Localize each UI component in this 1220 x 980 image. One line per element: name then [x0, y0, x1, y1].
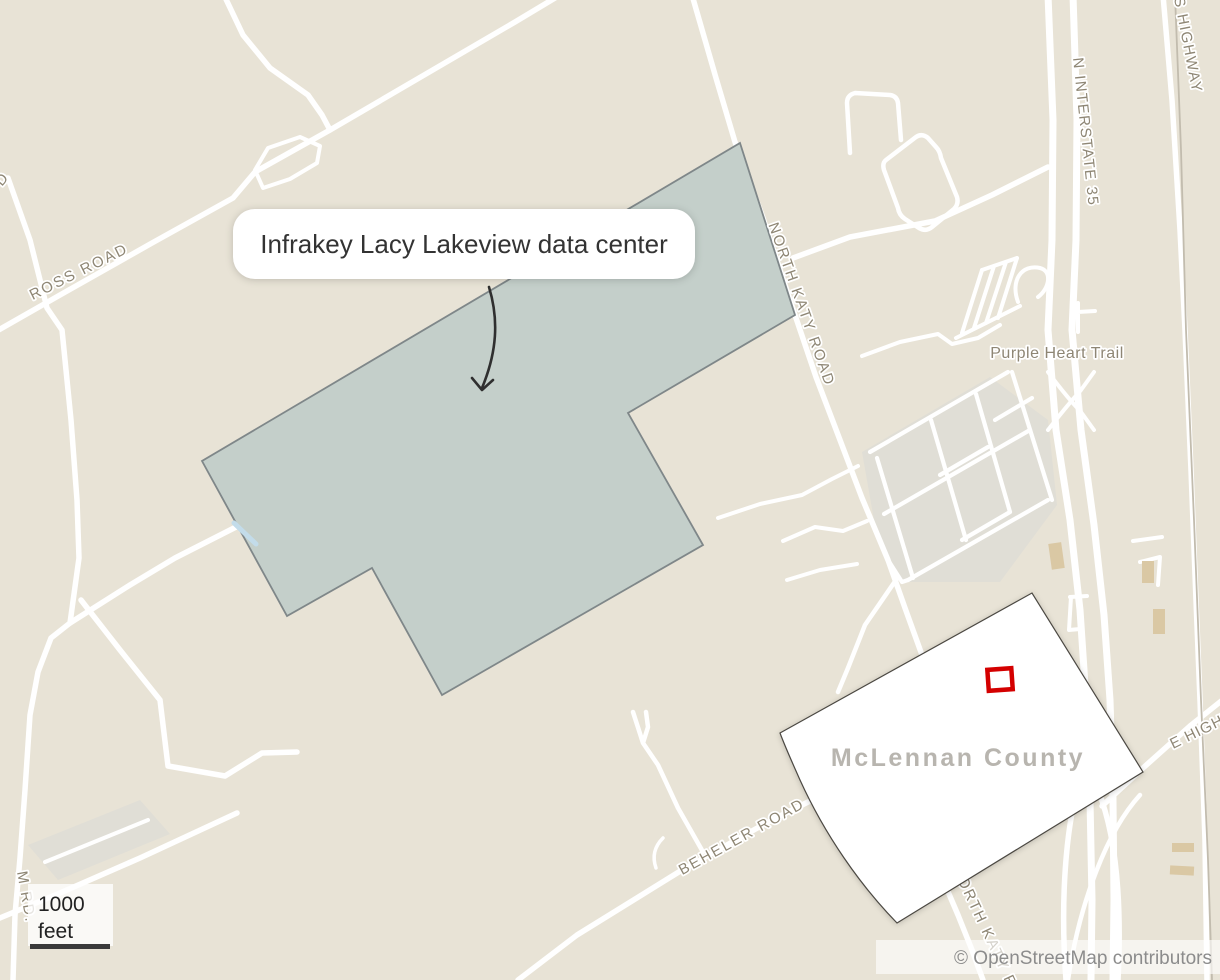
- attribution-bar: © OpenStreetMap contributors: [876, 940, 1220, 974]
- map-frame: ROSS ROAD NORTH KATY ROAD N INTERSTATE 3…: [0, 0, 1220, 980]
- county-name-label: McLennan County: [831, 744, 1085, 772]
- attribution-link[interactable]: © OpenStreetMap contributors: [954, 948, 1212, 969]
- scale-unit: feet: [38, 920, 73, 943]
- road-label-purple-heart-trail: Purple Heart Trail: [990, 345, 1124, 362]
- building: [1153, 609, 1165, 634]
- site-callout: Infrakey Lacy Lakeview data center: [233, 209, 695, 279]
- map-canvas[interactable]: ROSS ROAD NORTH KATY ROAD N INTERSTATE 3…: [0, 0, 1220, 980]
- building: [1172, 843, 1194, 852]
- building: [1170, 865, 1194, 875]
- scale-value: 1000: [38, 893, 85, 916]
- callout-label: Infrakey Lacy Lakeview data center: [260, 229, 668, 259]
- building: [1142, 561, 1154, 583]
- scale-bar-rule: [30, 944, 110, 949]
- scale-bar: 1000 feet: [28, 884, 113, 949]
